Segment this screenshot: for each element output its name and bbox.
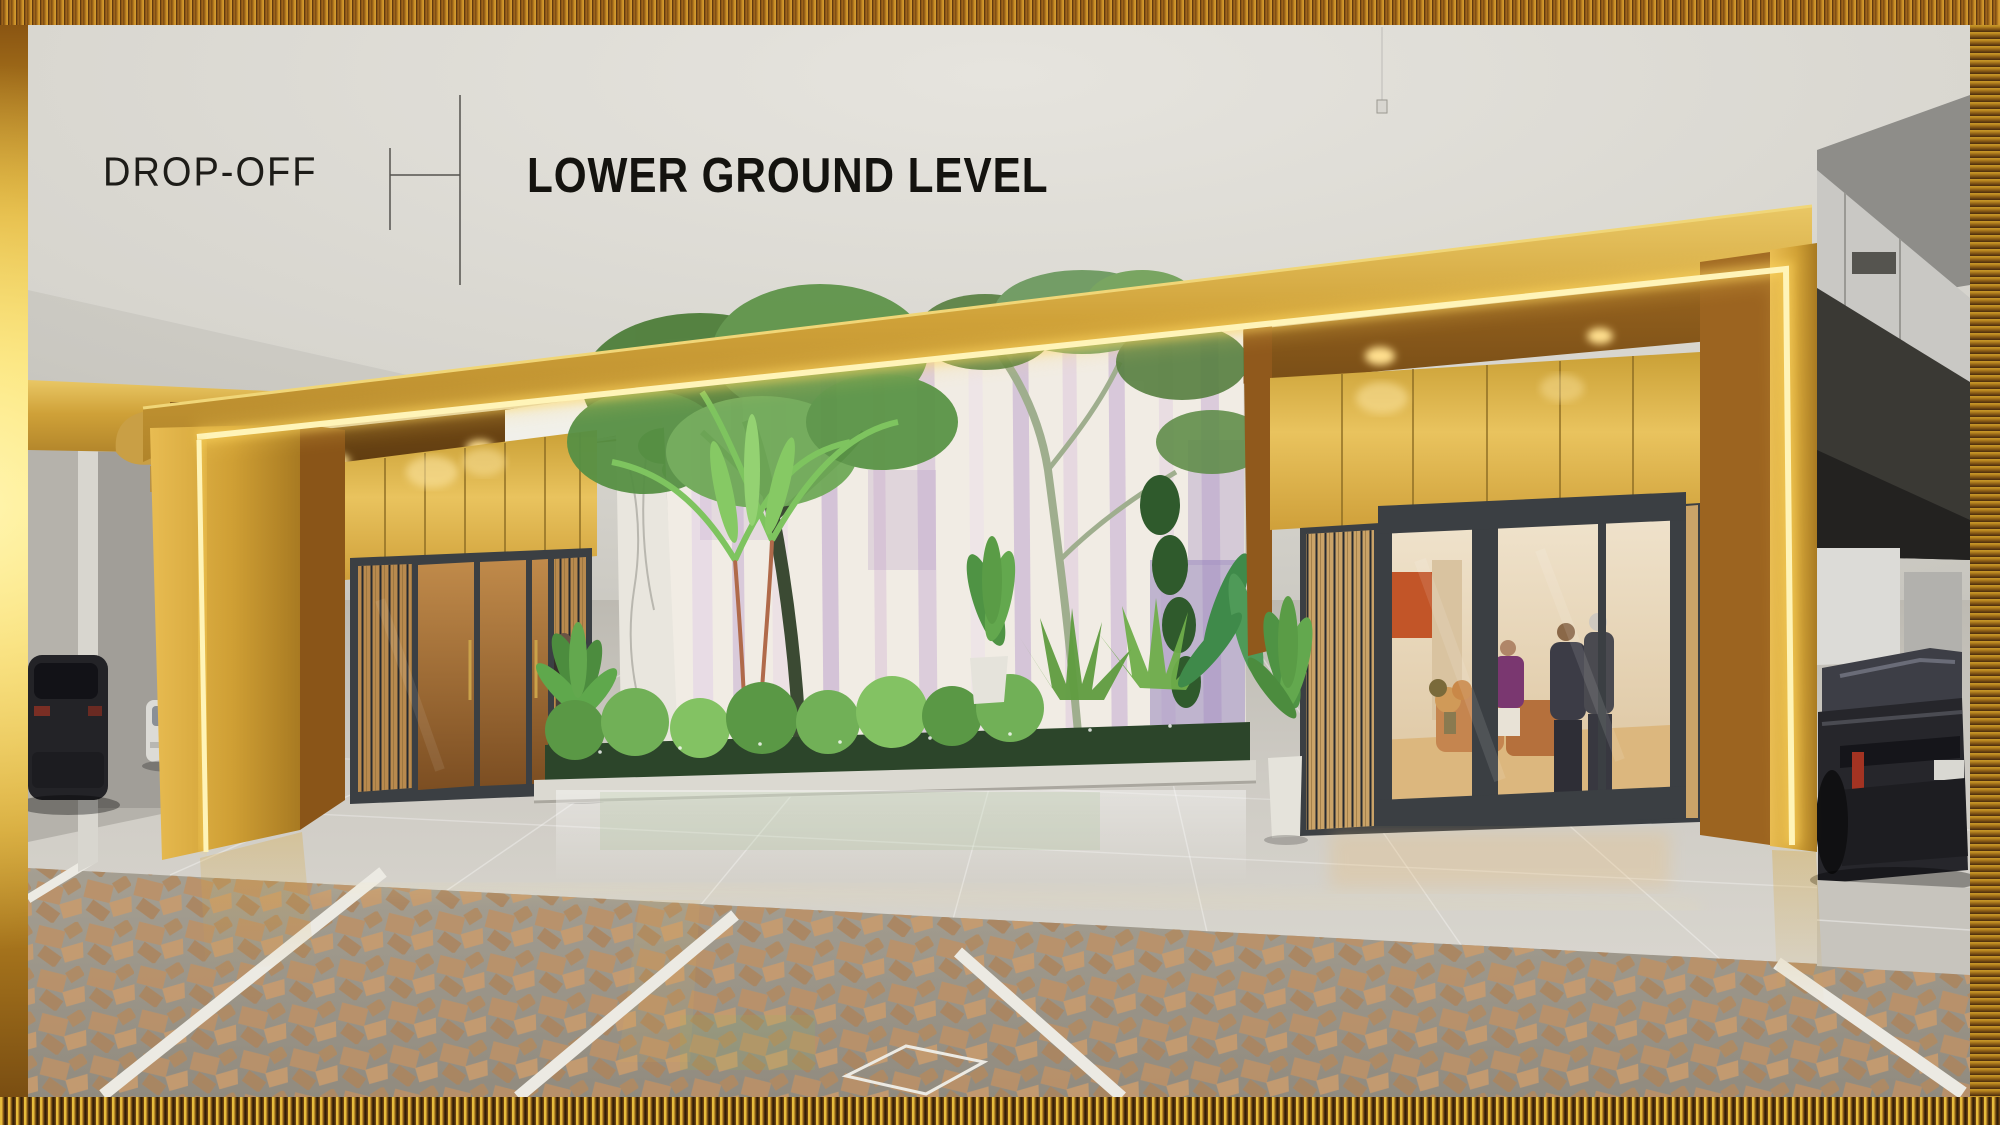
frame-border-top xyxy=(0,0,2000,25)
parked-car-dark-left xyxy=(16,655,120,815)
level-label: LOWER GROUND LEVEL xyxy=(527,146,1048,203)
portal-left-pillar xyxy=(150,424,300,860)
right-parking-garage xyxy=(1810,95,1980,975)
area-label: DROP-OFF xyxy=(103,150,317,196)
right-entrance-lobby xyxy=(1242,296,1700,845)
parked-car-right xyxy=(1810,648,1980,893)
portal-right-reveal xyxy=(1700,252,1770,845)
frame-border-right xyxy=(1970,25,2000,1097)
frame-border-left xyxy=(0,25,28,1097)
frame-border-bottom xyxy=(0,1097,2000,1125)
right-entrance-doors xyxy=(1300,492,1700,836)
framed-render: DROP-OFF LOWER GROUND LEVEL xyxy=(0,0,2000,1125)
